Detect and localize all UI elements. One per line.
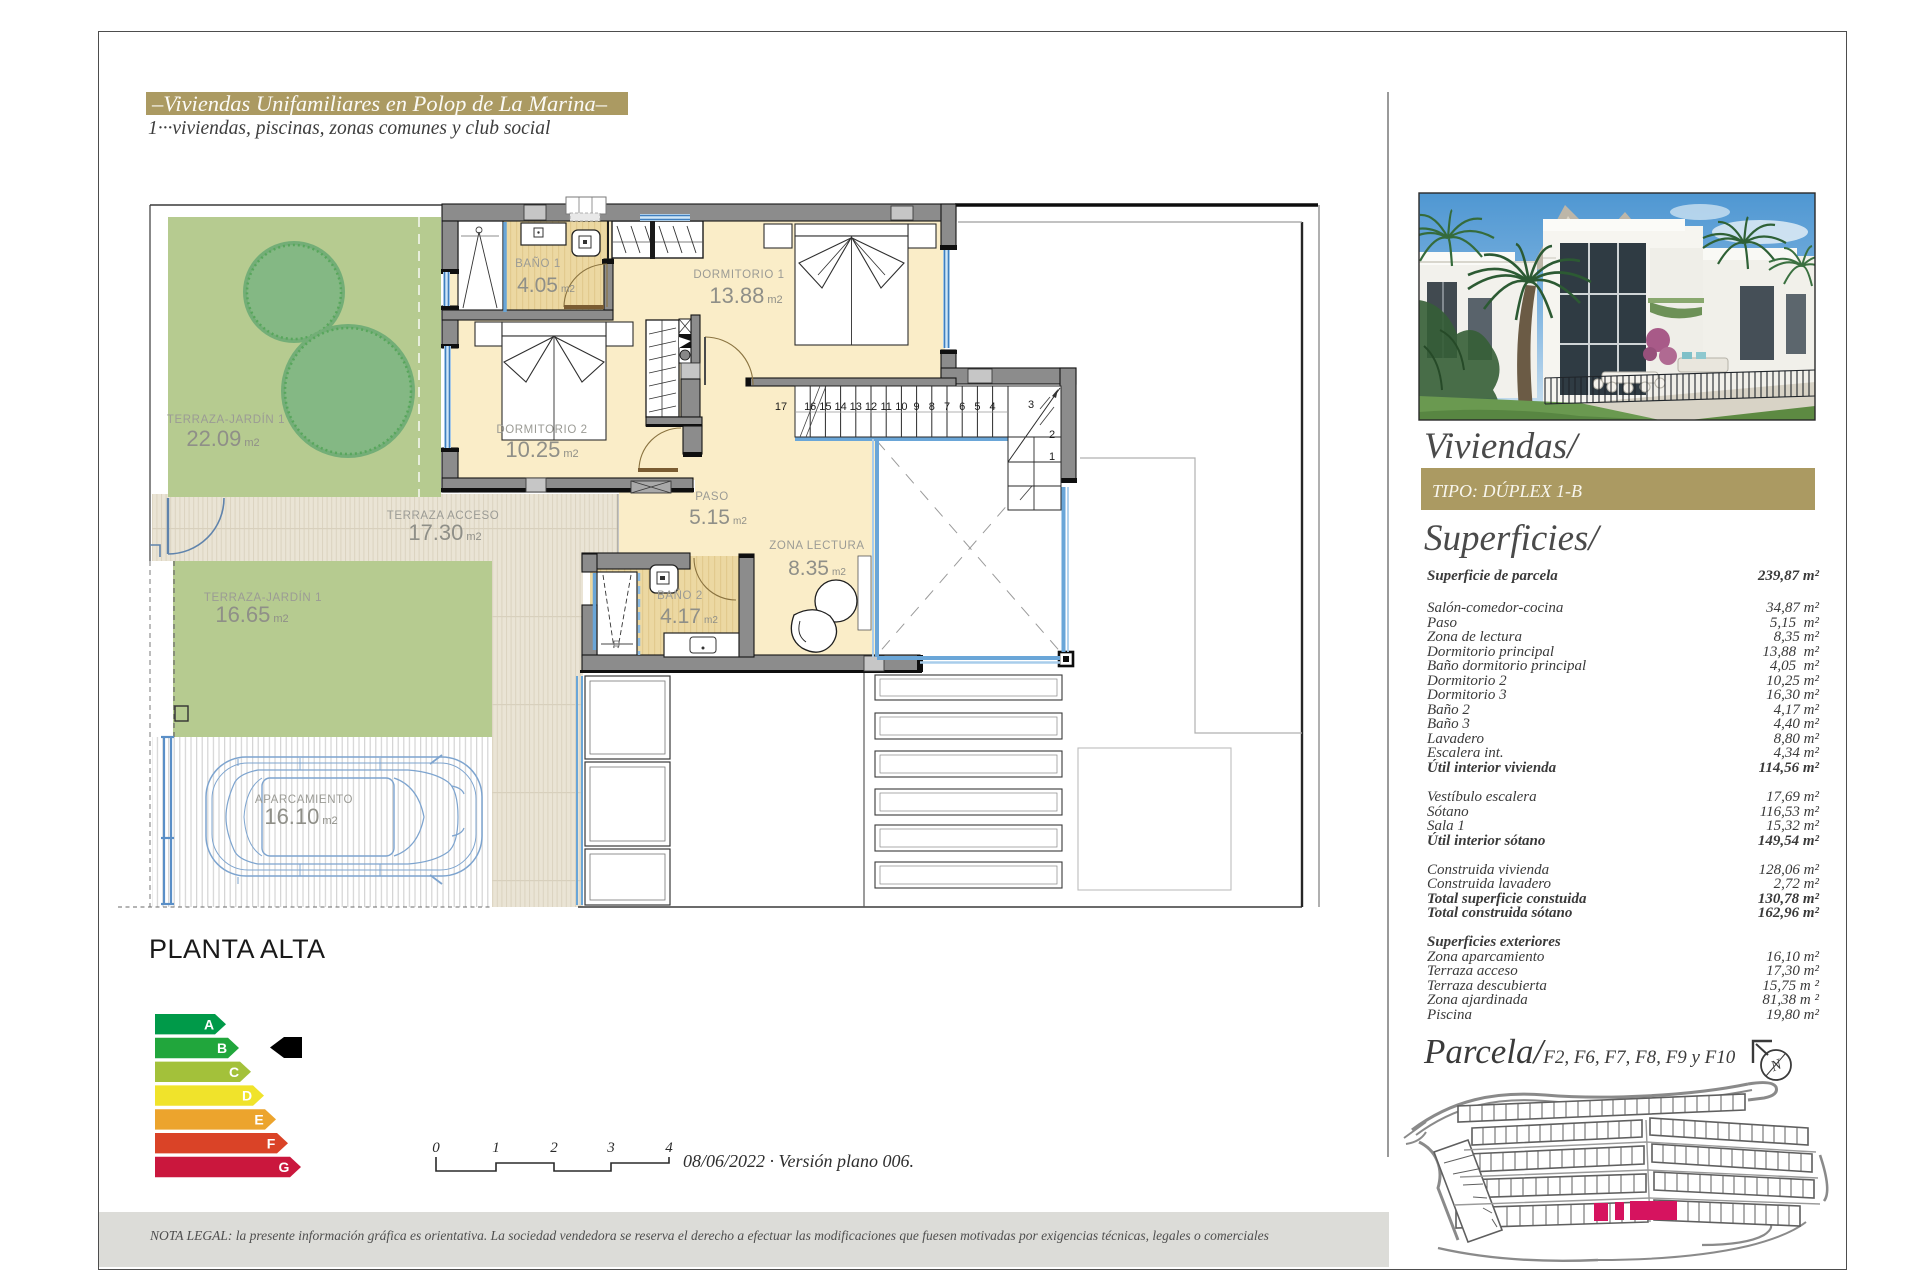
svg-text:5: 5 — [974, 401, 980, 413]
svg-text:3: 3 — [606, 1140, 615, 1156]
svg-text:8: 8 — [929, 401, 935, 413]
svg-text:A: A — [204, 1016, 214, 1032]
svg-text:17: 17 — [775, 401, 787, 413]
svg-text:1: 1 — [492, 1140, 500, 1156]
svg-text:0: 0 — [432, 1140, 440, 1156]
svg-text:B: B — [217, 1040, 227, 1056]
svg-text:3: 3 — [1028, 399, 1034, 411]
svg-text:C: C — [229, 1064, 239, 1080]
svg-text:2: 2 — [550, 1140, 558, 1156]
svg-text:DORMITORIO 2: DORMITORIO 2 — [496, 424, 587, 436]
svg-text:TERRAZA-JARDÍN 1: TERRAZA-JARDÍN 1 — [167, 413, 285, 426]
svg-text:ZONA LECTURA: ZONA LECTURA — [769, 540, 864, 552]
svg-text:BAÑO 1: BAÑO 1 — [515, 257, 561, 270]
svg-text:9: 9 — [914, 401, 920, 413]
svg-text:PASO: PASO — [695, 491, 729, 503]
svg-text:F: F — [267, 1135, 276, 1151]
svg-text:10: 10 — [895, 401, 907, 413]
svg-text:6: 6 — [959, 401, 965, 413]
svg-text:DORMITORIO 1: DORMITORIO 1 — [693, 269, 784, 281]
svg-text:2: 2 — [1049, 429, 1055, 441]
svg-text:11: 11 — [880, 401, 891, 413]
svg-text:16: 16 — [804, 401, 816, 413]
svg-text:12: 12 — [865, 401, 877, 413]
svg-text:D: D — [242, 1088, 252, 1104]
svg-text:BAÑO 2: BAÑO 2 — [657, 589, 703, 602]
svg-text:14: 14 — [834, 401, 846, 413]
svg-text:7: 7 — [944, 401, 950, 413]
svg-text:1: 1 — [1049, 451, 1055, 463]
svg-text:E: E — [254, 1112, 263, 1128]
svg-text:N: N — [1768, 1056, 1785, 1075]
svg-text:13: 13 — [850, 401, 862, 413]
svg-text:4: 4 — [990, 401, 996, 413]
svg-text:15: 15 — [819, 401, 831, 413]
svg-text:G: G — [279, 1159, 290, 1175]
svg-text:4: 4 — [665, 1140, 673, 1156]
